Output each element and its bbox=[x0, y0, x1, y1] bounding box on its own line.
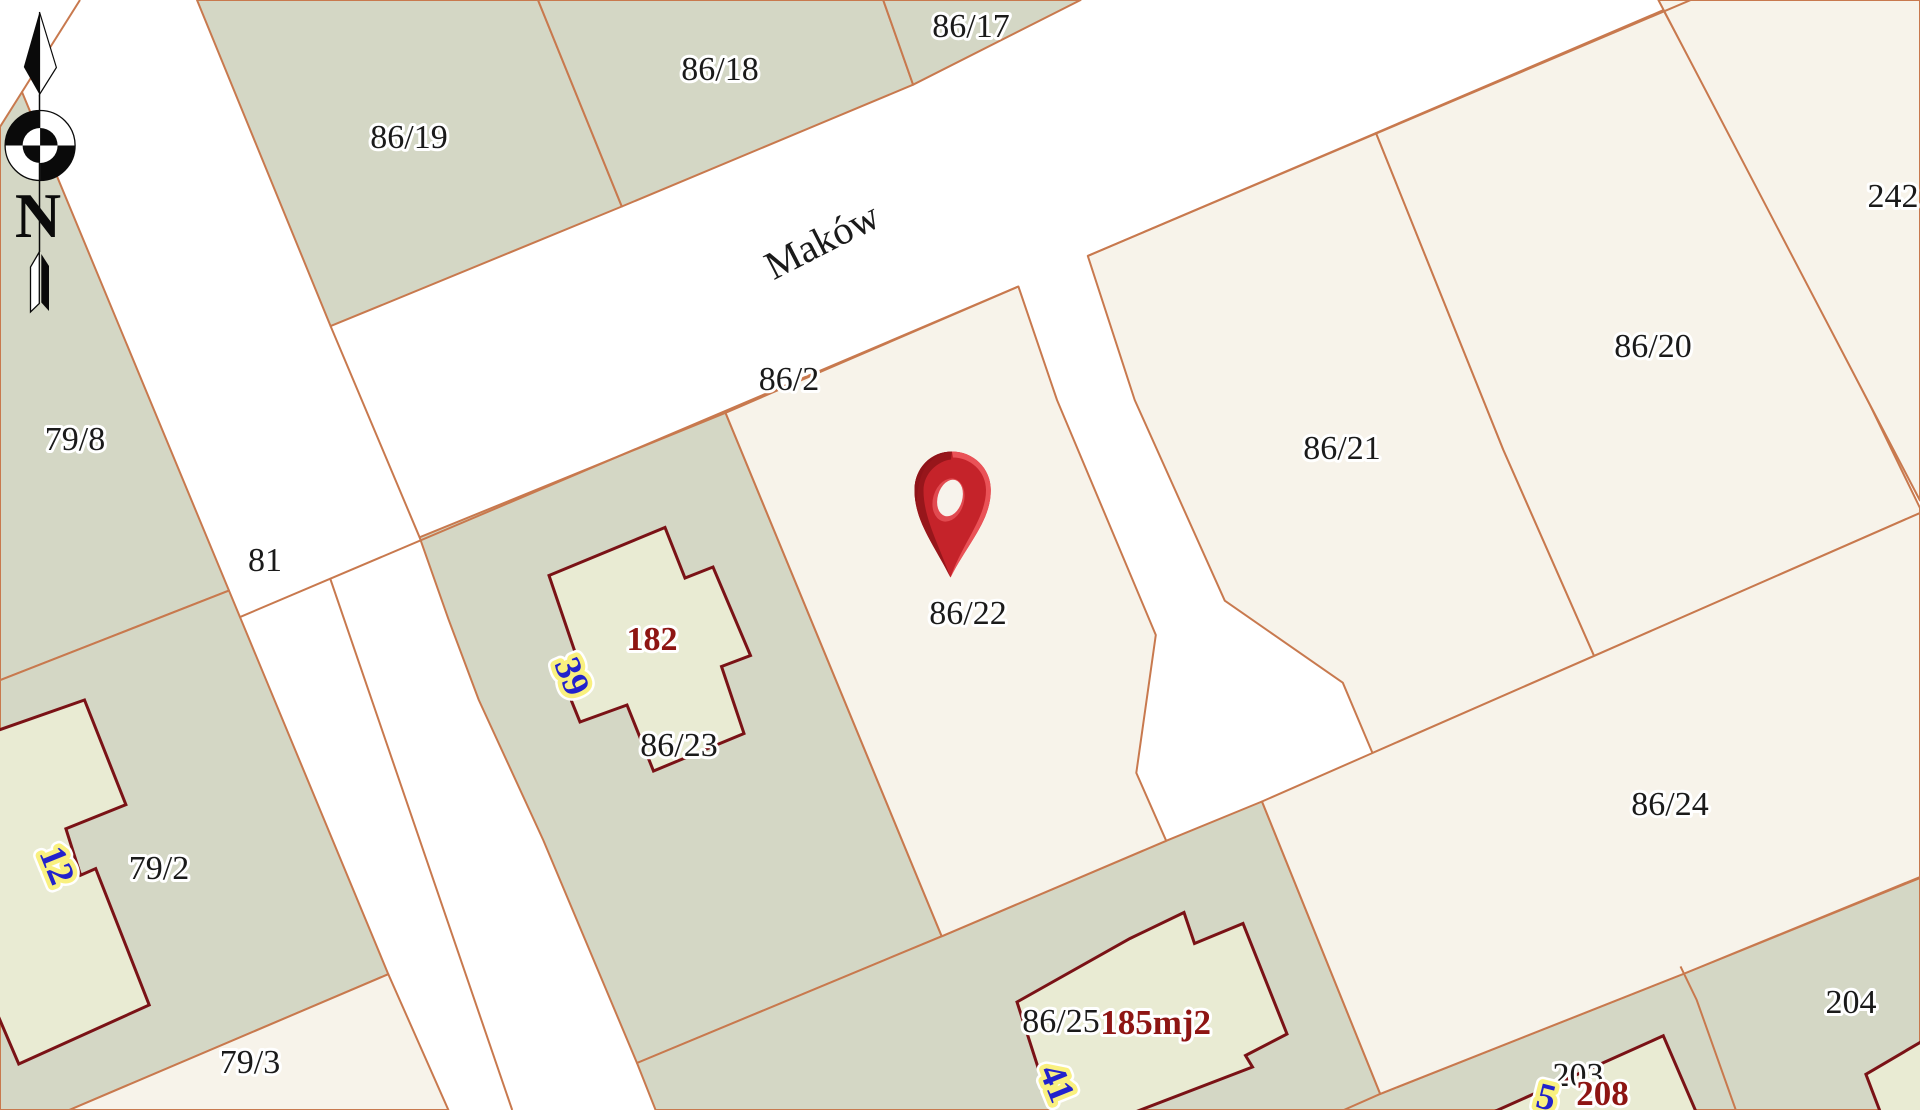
svg-text:86/2: 86/2 bbox=[759, 361, 819, 398]
svg-text:86/23: 86/23 bbox=[640, 727, 717, 764]
svg-text:86/17: 86/17 bbox=[932, 8, 1009, 45]
svg-text:242: 242 bbox=[1868, 178, 1919, 215]
svg-text:86/18: 86/18 bbox=[681, 51, 758, 88]
svg-text:79/3: 79/3 bbox=[220, 1044, 280, 1081]
svg-text:86/24: 86/24 bbox=[1631, 786, 1708, 823]
svg-text:185mj2: 185mj2 bbox=[1100, 1003, 1211, 1042]
svg-text:86/22: 86/22 bbox=[929, 595, 1006, 632]
svg-text:81: 81 bbox=[248, 542, 282, 579]
svg-text:182: 182 bbox=[627, 621, 678, 658]
svg-text:86/25: 86/25 bbox=[1022, 1003, 1099, 1040]
svg-text:86/21: 86/21 bbox=[1303, 430, 1380, 467]
svg-text:86/19: 86/19 bbox=[370, 119, 447, 156]
svg-text:79/2: 79/2 bbox=[129, 850, 189, 887]
svg-text:N: N bbox=[15, 180, 61, 251]
svg-text:208: 208 bbox=[1576, 1074, 1629, 1110]
svg-text:79/8: 79/8 bbox=[45, 421, 105, 458]
svg-text:86/20: 86/20 bbox=[1614, 328, 1691, 365]
svg-text:204: 204 bbox=[1826, 984, 1877, 1021]
